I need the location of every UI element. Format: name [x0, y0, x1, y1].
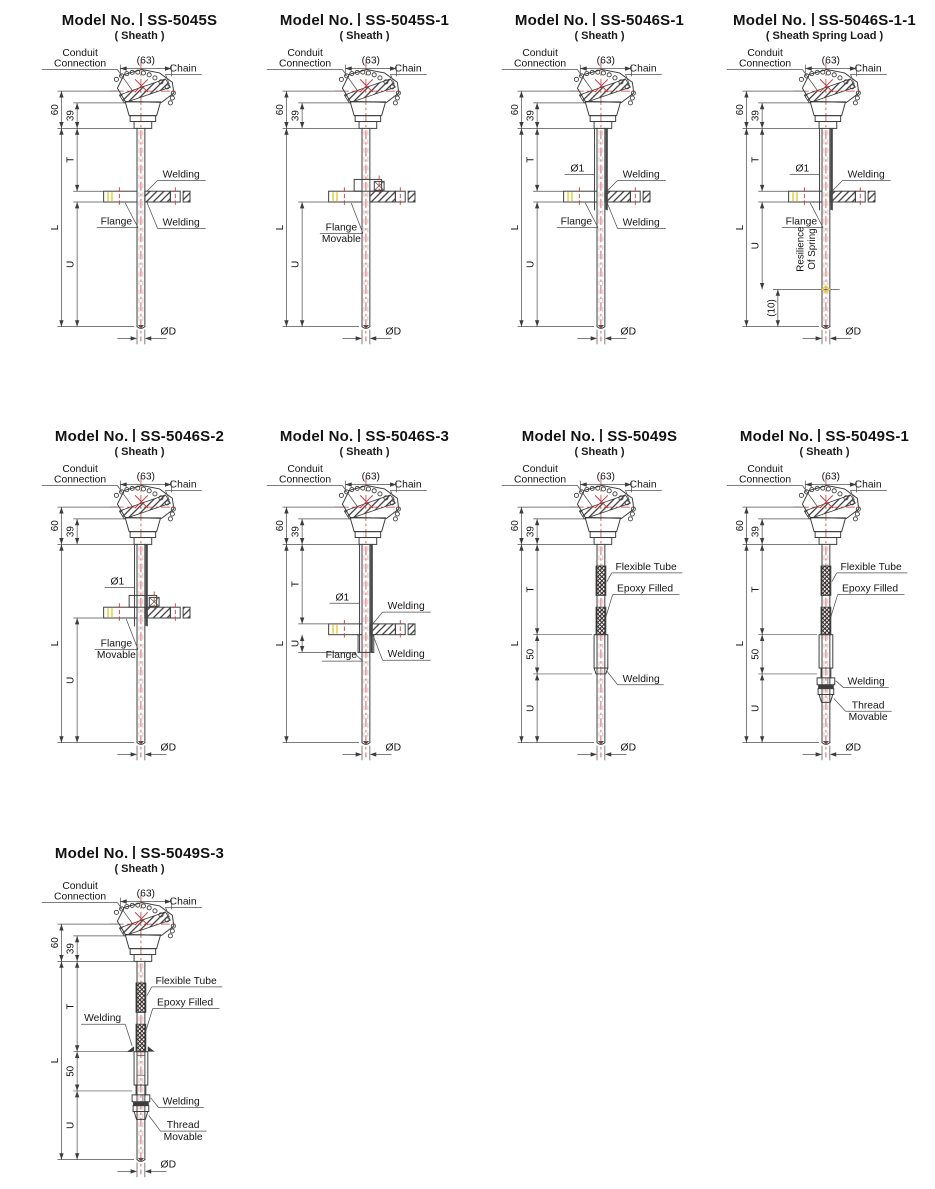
dim-T: T [66, 1004, 77, 1010]
dim-63-label: (63) [137, 889, 155, 900]
dim-60: 60 [50, 104, 61, 115]
model-subtitle: ( Sheath ) [483, 446, 716, 458]
model-subtitle: ( Sheath ) [708, 446, 935, 458]
dim-od-label: ØD [386, 326, 401, 337]
chain-label: Chain [395, 63, 422, 74]
model-title: Model No.SS-5049S-1 [708, 428, 935, 445]
chain-label: Chain [170, 896, 197, 907]
model-subtitle: ( Sheath ) [483, 30, 716, 42]
dim-T: T [751, 587, 762, 593]
dim-39: 39 [66, 526, 77, 537]
model-title-prefix: Model No. [515, 12, 588, 29]
welding-label: Welding [848, 677, 885, 688]
dim-U: U [291, 261, 302, 268]
flange-label: Flange [786, 217, 818, 228]
dim-L: L [50, 224, 61, 230]
dim-phi1-label: Ø1 [111, 577, 125, 588]
dim-39: 39 [526, 110, 537, 121]
model-panel-ss-5046s-2: Model No.SS-5046S-2( Sheath ) ConduitCon… [23, 428, 256, 776]
technical-drawing: ConduitConnectionChain(63)6039LTWeldingW… [483, 44, 712, 360]
dim-60: 60 [50, 937, 61, 948]
model-title-prefix: Model No. [280, 428, 353, 445]
model-panel-ss-5049s-1: Model No.SS-5049S-1( Sheath ) ConduitCon… [708, 428, 935, 776]
conduit-connection-label: Connection [739, 475, 791, 486]
technical-drawing: ConduitConnectionChain(63)6039LFlangeMov… [23, 460, 252, 776]
conduit-connection-label: Conduit [62, 48, 98, 59]
conduit-connection-label: Connection [54, 475, 106, 486]
dim-phi1-label: Ø1 [336, 592, 350, 603]
dim-63-label: (63) [822, 56, 840, 67]
model-title: Model No.SS-5046S-2 [23, 428, 256, 445]
chain-label: Chain [630, 479, 657, 490]
technical-drawing: ConduitConnectionChain(63)6039LTWeldingF… [708, 44, 935, 360]
model-code: SS-5045S [147, 12, 217, 29]
welding-label: Welding [848, 169, 885, 180]
title-separator [600, 429, 602, 442]
model-panel-ss-5046s-1-1: Model No.SS-5046S-1-1( Sheath Spring Loa… [708, 12, 935, 360]
conduit-connection-label: Conduit [62, 881, 98, 892]
dim-L: L [275, 640, 286, 646]
model-code: SS-5046S-1-1 [819, 12, 916, 29]
title-separator [140, 13, 142, 26]
dim-phi1-label: Ø1 [571, 164, 585, 175]
model-code: SS-5045S-1 [365, 12, 449, 29]
model-code: SS-5046S-1 [600, 12, 684, 29]
title-separator [358, 429, 360, 442]
dim-T: T [66, 157, 77, 163]
title-separator [812, 13, 814, 26]
conduit-connection-label: Connection [54, 59, 106, 70]
dim-U: U [291, 640, 302, 647]
dim-U: U [66, 261, 77, 268]
model-title: Model No.SS-5049S [483, 428, 716, 445]
model-subtitle: ( Sheath ) [248, 446, 481, 458]
flange-label: Flange [326, 650, 358, 661]
dim-39: 39 [526, 526, 537, 537]
conduit-connection-label: Connection [279, 59, 331, 70]
dim-L: L [50, 1057, 61, 1063]
chain-label: Chain [395, 479, 422, 490]
dim-od-label: ØD [386, 742, 401, 753]
model-title-prefix: Model No. [55, 428, 128, 445]
welding-label: Welding [388, 649, 425, 660]
model-title: Model No.SS-5046S-1 [483, 12, 716, 29]
welding-label: Welding [623, 674, 660, 685]
model-panel-ss-5045s-1: Model No.SS-5045S-1( Sheath ) ConduitCon… [248, 12, 481, 360]
model-title: Model No.SS-5046S-1-1 [708, 12, 935, 29]
flexible-tube-label: Flexible Tube [840, 562, 902, 573]
model-subtitle: ( Sheath Spring Load ) [708, 30, 935, 42]
conduit-connection-label: Connection [279, 475, 331, 486]
dim-U: U [66, 1122, 77, 1129]
dim-10: (10) [766, 299, 777, 316]
dim-phi1-label: Ø1 [796, 164, 810, 175]
conduit-connection-label: Connection [54, 892, 106, 903]
model-title: Model No.SS-5049S-3 [23, 845, 256, 862]
title-separator [358, 13, 360, 26]
dim-L: L [510, 640, 521, 646]
title-separator [133, 429, 135, 442]
flange-movable-label: Flange [326, 222, 358, 233]
dim-U: U [751, 705, 762, 712]
conduit-connection-label: Conduit [62, 464, 98, 475]
dim-od-label: ØD [161, 742, 176, 753]
dim-od-label: ØD [621, 742, 636, 753]
conduit-connection-label: Conduit [287, 464, 323, 475]
model-subtitle: ( Sheath ) [23, 30, 256, 42]
dim-U: U [751, 242, 762, 249]
title-separator [593, 13, 595, 26]
technical-drawing: ConduitConnectionChain(63)6039LFlangeMov… [248, 44, 477, 360]
dim-U: U [66, 677, 77, 684]
chain-label: Chain [630, 63, 657, 74]
conduit-connection-label: Connection [514, 475, 566, 486]
title-separator [818, 429, 820, 442]
technical-drawing: ConduitConnectionChain(63)6039LTUWelding… [248, 460, 477, 776]
flange-label: Flange [101, 217, 133, 228]
epoxy-filled-label: Epoxy Filled [157, 998, 213, 1009]
technical-drawing: ConduitConnectionChain(63)6039LT50UFlexi… [483, 460, 712, 776]
model-subtitle: ( Sheath ) [248, 30, 481, 42]
conduit-connection-label: Connection [514, 59, 566, 70]
dim-63-label: (63) [597, 472, 615, 483]
dim-60: 60 [275, 104, 286, 115]
welding-label: Welding [623, 169, 660, 180]
model-subtitle: ( Sheath ) [23, 446, 256, 458]
dim-39: 39 [291, 526, 302, 537]
epoxy-filled-label: Epoxy Filled [617, 584, 673, 595]
dim-od-label: ØD [846, 326, 861, 337]
resilience-label: Of Spring [807, 228, 818, 269]
dim-L: L [275, 224, 286, 230]
model-panel-ss-5046s-1: Model No.SS-5046S-1( Sheath ) ConduitCon… [483, 12, 716, 360]
welding-label: Welding [163, 218, 200, 229]
model-code: SS-5049S [607, 428, 677, 445]
dim-L: L [50, 640, 61, 646]
model-panel-ss-5049s-3: Model No.SS-5049S-3( Sheath ) ConduitCon… [23, 845, 256, 1189]
model-title-prefix: Model No. [62, 12, 135, 29]
flange-movable-label: Movable [97, 650, 136, 661]
conduit-connection-label: Connection [739, 59, 791, 70]
model-title-prefix: Model No. [522, 428, 595, 445]
flange-label: Flange [561, 217, 593, 228]
welding-label: Welding [623, 218, 660, 229]
model-title: Model No.SS-5045S [23, 12, 256, 29]
conduit-connection-label: Conduit [747, 464, 783, 475]
welding-label: Welding [163, 1097, 200, 1108]
dim-39: 39 [751, 526, 762, 537]
dim-od-label: ØD [161, 1159, 176, 1170]
dim-60: 60 [510, 104, 521, 115]
flange-movable-label: Flange [101, 638, 133, 649]
dim-63-label: (63) [822, 472, 840, 483]
technical-drawing: ConduitConnectionChain(63)6039LT50UFlexi… [23, 877, 252, 1189]
dim-od-label: ØD [621, 326, 636, 337]
thread-movable-label: Movable [849, 712, 888, 723]
dim-U: U [526, 261, 537, 268]
dim-L: L [735, 224, 746, 230]
dim-U: U [526, 705, 537, 712]
chain-label: Chain [170, 479, 197, 490]
dim-63-label: (63) [362, 56, 380, 67]
model-panel-ss-5046s-3: Model No.SS-5046S-3( Sheath ) ConduitCon… [248, 428, 481, 776]
chain-label: Chain [855, 479, 882, 490]
dim-T: T [751, 157, 762, 163]
welding-label: Welding [84, 1013, 121, 1024]
dim-39: 39 [751, 110, 762, 121]
title-separator [133, 846, 135, 859]
dim-63-label: (63) [597, 56, 615, 67]
chain-label: Chain [170, 63, 197, 74]
resilience-label: Resilience [795, 226, 806, 272]
dim-L: L [735, 640, 746, 646]
flexible-tube-label: Flexible Tube [615, 562, 677, 573]
thread-movable-label: Movable [164, 1132, 203, 1143]
dim-50: 50 [526, 648, 537, 659]
dim-T: T [526, 587, 537, 593]
model-panel-ss-5049s: Model No.SS-5049S( Sheath ) ConduitConne… [483, 428, 716, 776]
dim-39: 39 [66, 943, 77, 954]
chain-label: Chain [855, 63, 882, 74]
dim-39: 39 [66, 110, 77, 121]
dim-50: 50 [751, 648, 762, 659]
welding-label: Welding [388, 601, 425, 612]
dim-od-label: ØD [161, 326, 176, 337]
dim-50: 50 [66, 1065, 77, 1076]
catalog-sheet: Model No.SS-5045S( Sheath ) ConduitConne… [0, 0, 935, 1189]
dim-60: 60 [510, 520, 521, 531]
model-code: SS-5046S-3 [365, 428, 449, 445]
welding-label: Welding [163, 169, 200, 180]
dim-T: T [526, 157, 537, 163]
model-title: Model No.SS-5046S-3 [248, 428, 481, 445]
model-code: SS-5049S-3 [140, 845, 224, 862]
thread-movable-label: Thread [852, 700, 885, 711]
dim-60: 60 [275, 520, 286, 531]
dim-39: 39 [291, 110, 302, 121]
model-code: SS-5046S-2 [140, 428, 224, 445]
conduit-connection-label: Conduit [747, 48, 783, 59]
model-title-prefix: Model No. [280, 12, 353, 29]
thread-movable-label: Thread [167, 1120, 200, 1131]
model-subtitle: ( Sheath ) [23, 863, 256, 875]
flexible-tube-label: Flexible Tube [155, 976, 217, 987]
dim-L: L [510, 224, 521, 230]
model-title: Model No.SS-5045S-1 [248, 12, 481, 29]
dim-60: 60 [735, 104, 746, 115]
model-panel-ss-5045s: Model No.SS-5045S( Sheath ) ConduitConne… [23, 12, 256, 360]
technical-drawing: ConduitConnectionChain(63)6039LT50UFlexi… [708, 460, 935, 776]
dim-60: 60 [735, 520, 746, 531]
dim-63-label: (63) [137, 472, 155, 483]
dim-63-label: (63) [137, 56, 155, 67]
epoxy-filled-label: Epoxy Filled [842, 584, 898, 595]
flange-movable-label: Movable [322, 234, 361, 245]
conduit-connection-label: Conduit [522, 464, 558, 475]
dim-T: T [291, 581, 302, 587]
dim-od-label: ØD [846, 742, 861, 753]
conduit-connection-label: Conduit [522, 48, 558, 59]
dim-63-label: (63) [362, 472, 380, 483]
model-code: SS-5049S-1 [825, 428, 909, 445]
dim-60: 60 [50, 520, 61, 531]
model-title-prefix: Model No. [740, 428, 813, 445]
conduit-connection-label: Conduit [287, 48, 323, 59]
technical-drawing: ConduitConnectionChain(63)6039LTWeldingW… [23, 44, 252, 360]
model-title-prefix: Model No. [733, 12, 806, 29]
model-title-prefix: Model No. [55, 845, 128, 862]
